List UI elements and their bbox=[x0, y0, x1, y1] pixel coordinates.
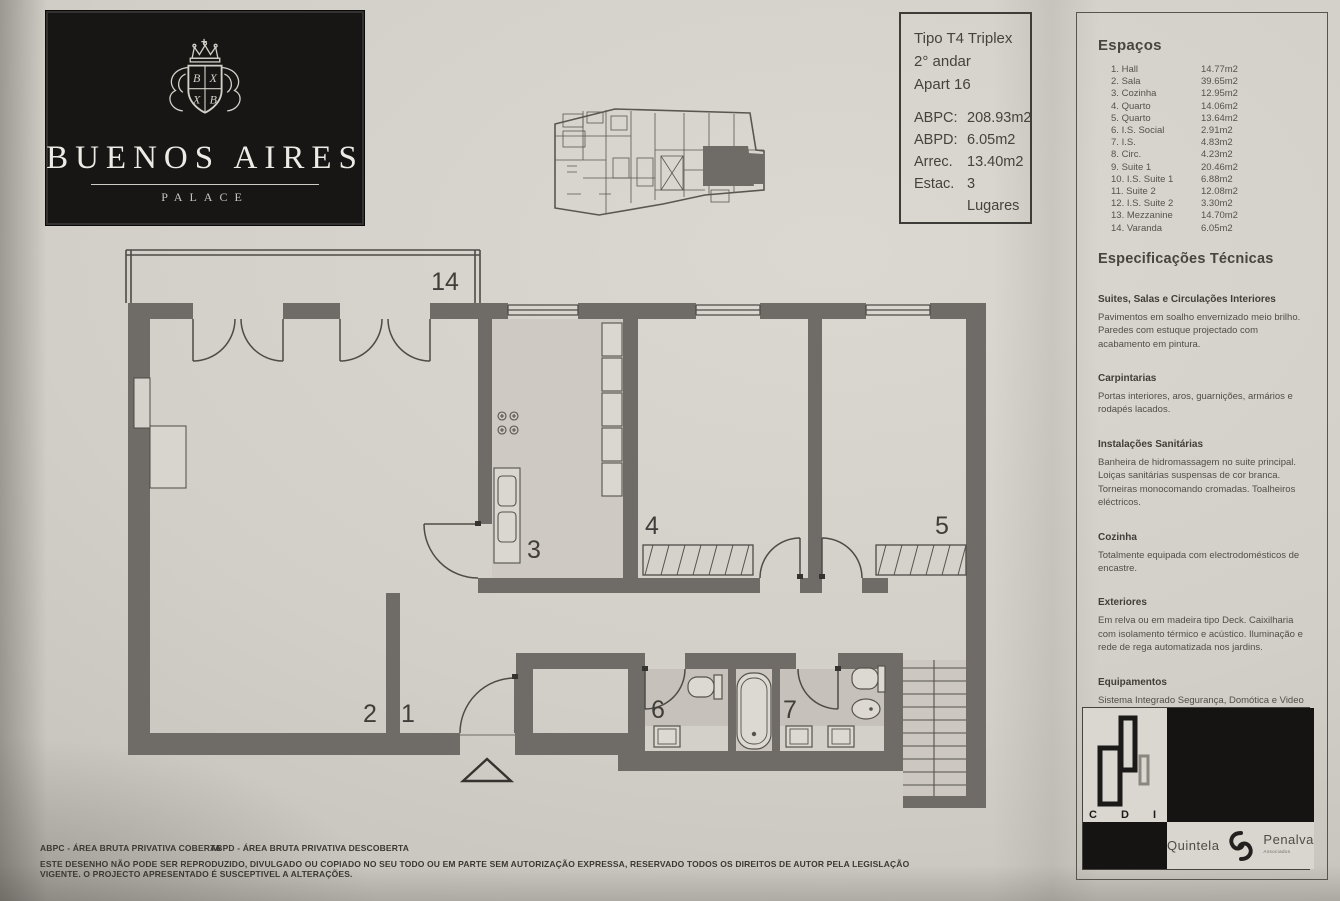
crest-quarter-4: B bbox=[210, 92, 218, 106]
label-is-social: 6 bbox=[651, 696, 665, 724]
copyright-disclaimer: ESTE DESENHO NÃO PODE SER REPRODUZIDO, D… bbox=[40, 859, 920, 879]
spec-section: Suites, Salas e Circulações Interiores P… bbox=[1098, 294, 1306, 351]
spec-section: Exteriores Em relva ou em madeira tipo D… bbox=[1098, 597, 1306, 654]
apartment-number: Apart 16 bbox=[914, 73, 1024, 96]
room-row: 11. Suite 212.08m2 bbox=[1111, 186, 1327, 198]
agency-logo-block: C D I Quintela Penalva Associados bbox=[1082, 707, 1310, 870]
spec-heading: Suites, Salas e Circulações Interiores bbox=[1098, 294, 1306, 305]
legend-abpc: ABPC - ÁREA BRUTA PRIVATIVA COBERTA bbox=[40, 843, 221, 853]
metric-value: 13.40m2 bbox=[967, 151, 1023, 173]
brand-title: BUENOS AIRES bbox=[46, 140, 364, 177]
room-row: 13. Mezzanine14.70m2 bbox=[1111, 210, 1327, 222]
penalva-subtext: Associados bbox=[1263, 847, 1290, 857]
french-door-arcs bbox=[193, 319, 430, 361]
cdi-letter-i: I bbox=[1153, 809, 1156, 821]
spec-heading: Instalações Sanitárias bbox=[1098, 439, 1306, 450]
label-sala: 2 bbox=[363, 700, 377, 728]
room-row: 8. Circ.4.23m2 bbox=[1111, 149, 1327, 161]
metric-row: ABPC:208.93m2 bbox=[914, 107, 1024, 129]
metric-label: Estac. bbox=[914, 173, 967, 217]
label-is: 7 bbox=[783, 696, 797, 724]
room-row: 3. Cozinha12.95m2 bbox=[1111, 88, 1327, 100]
room-row: 5. Quarto13.64m2 bbox=[1111, 113, 1327, 125]
spec-heading: Carpintarias bbox=[1098, 373, 1306, 384]
spec-section: Cozinha Totalmente equipada com electrod… bbox=[1098, 532, 1306, 576]
heraldic-crest-icon: B X X B bbox=[157, 37, 253, 133]
room-row: 12. I.S. Suite 23.30m2 bbox=[1111, 198, 1327, 210]
metric-row: Arrec.13.40m2 bbox=[914, 151, 1024, 173]
bidet-icon bbox=[852, 699, 880, 719]
spec-section: Carpintarias Portas interiores, aros, gu… bbox=[1098, 373, 1306, 417]
room-row: 14. Varanda6.05m2 bbox=[1111, 223, 1327, 235]
black-panel bbox=[1167, 708, 1314, 822]
spec-body: Totalmente equipada com electrodoméstico… bbox=[1098, 549, 1306, 576]
crest-quarter-1: B bbox=[193, 71, 201, 85]
label-quarto-5: 5 bbox=[935, 512, 949, 540]
windows bbox=[508, 305, 930, 315]
spec-body: Banheira de hidromassagem no suite princ… bbox=[1098, 456, 1306, 510]
room-row: 7. I.S.4.83m2 bbox=[1111, 137, 1327, 149]
label-quarto-4: 4 bbox=[645, 512, 659, 540]
tech-specs-title: Especificações Técnicas bbox=[1098, 251, 1327, 267]
room-list: 1. Hall14.77m2 2. Sala39.65m2 3. Cozinha… bbox=[1111, 64, 1327, 235]
quintela-penalva-swirl-icon bbox=[1225, 830, 1257, 862]
brand-panel: B X X B BUENOS AIRES PALACE bbox=[45, 10, 365, 226]
quintela-text: Quintela bbox=[1167, 838, 1219, 853]
crest-quarter-2: X bbox=[209, 71, 218, 85]
quintela-penalva-logo: Quintela Penalva Associados bbox=[1167, 822, 1314, 869]
brand-divider bbox=[91, 184, 319, 185]
floorplan-drawing: 14 2 1 3 4 5 6 7 bbox=[118, 228, 1010, 820]
spec-heading: Cozinha bbox=[1098, 532, 1306, 543]
scanned-floorplan-sheet: B X X B BUENOS AIRES PALACE bbox=[0, 0, 1340, 901]
area-metrics: ABPC:208.93m2 ABPD:6.05m2 Arrec.13.40m2 … bbox=[914, 107, 1024, 217]
entrance-marker bbox=[463, 759, 511, 781]
penalva-text: Penalva bbox=[1263, 835, 1313, 845]
metric-value: 6.05m2 bbox=[967, 129, 1015, 151]
metric-row: ABPD:6.05m2 bbox=[914, 129, 1024, 151]
black-panel bbox=[1083, 822, 1167, 869]
overview-plan bbox=[543, 98, 771, 230]
metric-row: Estac.3 Lugares bbox=[914, 173, 1024, 217]
wardrobes bbox=[643, 545, 966, 575]
wc-icon bbox=[714, 675, 722, 699]
metric-value: 208.93m2 bbox=[967, 107, 1032, 129]
apartment-type: Tipo T4 Triplex bbox=[914, 27, 1024, 50]
wc-icon bbox=[878, 666, 885, 692]
apartment-floor: 2° andar bbox=[914, 50, 1024, 73]
room-row: 2. Sala39.65m2 bbox=[1111, 76, 1327, 88]
apartment-location-highlight bbox=[703, 146, 764, 186]
room-row: 4. Quarto14.06m2 bbox=[1111, 101, 1327, 113]
balcony-railing bbox=[126, 250, 480, 303]
crest-quarter-3: X bbox=[192, 92, 201, 106]
room-row: 10. I.S. Suite 16.88m2 bbox=[1111, 174, 1327, 186]
spec-body: Em relva ou em madeira tipo Deck. Caixil… bbox=[1098, 614, 1306, 654]
spec-heading: Equipamentos bbox=[1098, 677, 1306, 688]
metric-label: Arrec. bbox=[914, 151, 967, 173]
spec-heading: Exteriores bbox=[1098, 597, 1306, 608]
apartment-info-box: Tipo T4 Triplex 2° andar Apart 16 ABPC:2… bbox=[899, 12, 1032, 224]
label-varanda: 14 bbox=[431, 268, 459, 296]
room-row: 6. I.S. Social2.91m2 bbox=[1111, 125, 1327, 137]
label-cozinha: 3 bbox=[527, 536, 541, 564]
cdi-letter-d: D bbox=[1121, 809, 1129, 821]
spec-body: Pavimentos em soalho envernizado meio br… bbox=[1098, 311, 1306, 351]
cdi-letter-c: C bbox=[1089, 809, 1097, 821]
spec-body: Portas interiores, aros, guarnições, arm… bbox=[1098, 390, 1306, 417]
brand-subtitle: PALACE bbox=[46, 190, 364, 205]
legend-abpd: ABPD - ÁREA BRUTA PRIVATIVA DESCOBERTA bbox=[210, 843, 409, 853]
label-hall: 1 bbox=[401, 700, 415, 728]
room-row: 9. Suite 120.46m2 bbox=[1111, 162, 1327, 174]
metric-label: ABPD: bbox=[914, 129, 967, 151]
cdi-logo: C D I bbox=[1083, 708, 1167, 822]
metric-value: 3 Lugares bbox=[967, 173, 1024, 217]
spaces-title: Espaços bbox=[1098, 37, 1327, 54]
metric-label: ABPC: bbox=[914, 107, 967, 129]
spec-section: Instalações Sanitárias Banheira de hidro… bbox=[1098, 439, 1306, 510]
room-row: 1. Hall14.77m2 bbox=[1111, 64, 1327, 76]
